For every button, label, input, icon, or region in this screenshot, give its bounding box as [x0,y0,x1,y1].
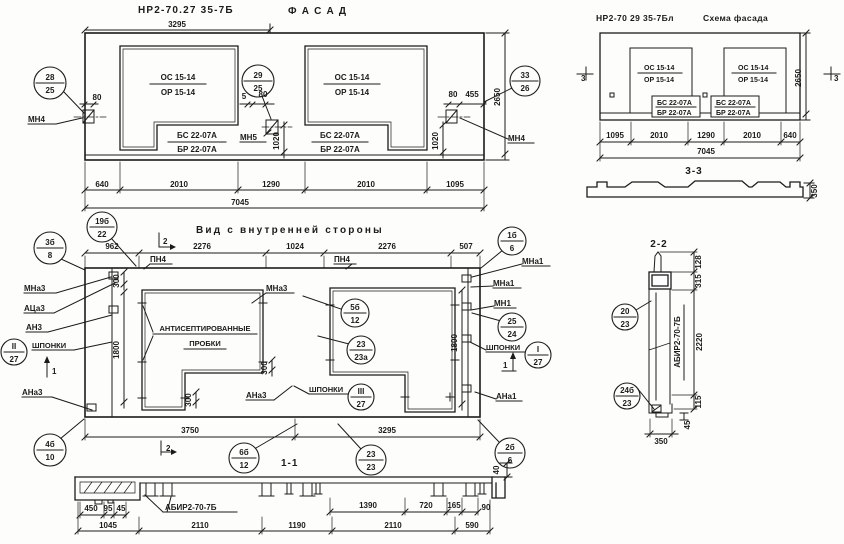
win1-or-label: ОР 15-14 [161,88,196,97]
dim-1020-right: 1020 [431,132,440,150]
callout-23c: 23 [621,320,630,329]
callout-10: 10 [46,453,55,462]
dim-7045: 7045 [231,198,249,207]
dim-2276a: 2276 [193,242,211,251]
dim-315: 315 [694,274,703,288]
dim-1020-lines [281,122,446,158]
callout-6a: 6 [510,244,515,253]
callout-1b: 1б [507,231,516,240]
shponki-right: ШПОНКИ [486,343,520,352]
callout-6bt: 6б [239,448,248,457]
dim-3295b: 3295 [378,426,396,435]
scheme-dim-1095: 1095 [606,131,624,140]
cut-1-left: 1 [52,367,57,376]
scheme-win2-or: ОР 15-14 [738,77,768,84]
scheme-win1-or: ОР 15-14 [644,77,674,84]
callout-24b: 24б [620,386,634,395]
callout-19b: 19б [95,217,109,226]
aca3-label: АЦа3 [24,304,45,313]
dim-45b: 45 [683,420,692,429]
dim-1800-right: 1800 [450,334,459,352]
cut-2-bottom: 2 [166,444,171,453]
panel-drawing: НР2-70.27 35-7Б Ф А С А Д 3295 ОС 15-14 … [0,0,844,544]
s22-break-line [649,343,670,350]
mna1-b: МНа1 [493,279,515,288]
dim-2010b: 2010 [357,180,375,189]
scheme-win2-os: ОС 15-14 [738,65,768,72]
plugs-label-2: ПРОБКИ [189,339,221,348]
ana3-mid: АНа3 [246,391,267,400]
plugs-label-1: АНТИСЕПТИРОВАННЫЕ [160,324,251,333]
dim-450: 450 [84,504,98,513]
dim-1020-mid: 1020 [272,132,281,150]
inner-top-extensions [85,256,480,268]
callout-I: I [537,345,539,354]
scheme-dim-640: 640 [783,131,797,140]
scheme-dim-2650: 2650 [794,69,803,87]
scheme-box1-br: БР 22-07А [657,110,692,117]
s22-lifting-tongue [654,252,661,272]
scheme-box1-bs: БС 22-07А [657,100,692,107]
mn5-label: МН5 [240,133,257,142]
dim-455: 455 [465,90,479,99]
dim-80-left: 80 [93,93,102,102]
callout-23y: 23 [367,463,376,472]
callout-24: 24 [508,330,517,339]
callout-12b: 12 [240,461,249,470]
dim-590: 590 [465,521,479,530]
s22-foot [649,404,672,417]
inner-view: Вид с внутренней стороны 962 [1,212,551,468]
ana1-label: АНа1 [496,392,517,401]
dim-40: 40 [492,465,501,474]
callout-28: 28 [46,73,55,82]
win2-os-label: ОС 15-14 [335,73,370,82]
dim-45a: 45 [117,504,126,513]
dim-300-a: 300 [112,274,121,288]
scheme-dim-2010a: 2010 [650,131,668,140]
s22-dim-45-line [680,413,688,420]
dim-2650: 2650 [493,88,502,106]
dim-115: 115 [694,395,703,408]
callout-bars [36,81,538,83]
mna3-left: МНа3 [24,284,46,293]
mna1-a: МНа1 [522,257,544,266]
dim-1045: 1045 [99,521,117,530]
dim-640: 640 [95,180,109,189]
scheme-title: НР2-70 29 35-7Бл [596,13,674,23]
callout-27b: 27 [357,400,366,409]
scheme-box2-br: БР 22-07А [716,110,751,117]
facade-scheme-view: НР2-70 29 35-7Бл Схема фасада ОС 15-14 О… [577,13,840,201]
mna3-mid: МНа3 [266,284,288,293]
callout-25t: 25 [508,317,517,326]
callout-27a: 27 [10,355,19,364]
inner-window-1-frame [145,293,260,407]
section-3-left: 3 [581,74,586,83]
dim-300-c: 300 [184,393,193,407]
dim-3295-label: 3295 [168,20,186,29]
dim-350b: 350 [654,437,668,446]
pn4-right: ПН4 [334,255,351,264]
dim-1390: 1390 [359,501,377,510]
dim-1800-left: 1800 [112,341,121,359]
win2-bs-label: БС 22-07А [320,131,360,140]
plug-cross-marks [138,299,459,402]
callout-12a: 12 [351,316,360,325]
inner-window-1 [142,290,263,410]
anchor-centerlines [74,117,470,127]
dim-962: 962 [105,242,119,251]
dim-1024: 1024 [286,242,304,251]
facade-subtitle: Ф А С А Д [288,6,347,17]
cut-1-right: 1 [503,361,508,370]
scheme-dim-7045: 7045 [697,147,715,156]
panel-mark-2-2: АБИР2-70-7Б [673,316,682,368]
dim-5: 5 [242,92,247,101]
dim-165: 165 [447,501,461,510]
cut-2-top: 2 [163,237,168,246]
facade-view: НР2-70.27 35-7Б Ф А С А Д 3295 ОС 15-14 … [28,5,540,211]
dim-1290: 1290 [262,180,280,189]
win1-os-label: ОС 15-14 [161,73,196,82]
win1-br-label: БР 22-07А [177,145,217,154]
callout-6b: 6 [508,456,513,465]
callout-23d: 23 [623,399,632,408]
dim-1800-lines [121,287,465,410]
section-2-2: 2-2 АБИР2-70-7Б 20 23 24б 23 128 315 222… [612,239,704,446]
scheme-dim-1290: 1290 [697,131,715,140]
inner-title: Вид с внутренней стороны [196,225,384,236]
callout-29: 29 [254,71,263,80]
ana3-left: АНа3 [22,388,43,397]
dim-2110b: 2110 [384,521,402,530]
callout-5b: 5б [350,303,359,312]
dim-chain-1 [82,187,487,193]
dim-2220: 2220 [695,333,704,351]
dim-300-b: 300 [260,361,269,375]
dim-1190: 1190 [288,521,306,530]
dim-80-right: 80 [449,90,458,99]
section-2-2-label: 2-2 [650,239,667,250]
dim-2110a: 2110 [191,521,209,530]
callout-23t: 23 [357,340,366,349]
callout-2b: 2б [505,443,514,452]
s11-chain-bottom [75,528,493,534]
an3-label: АН3 [26,323,43,332]
facade-title: НР2-70.27 35-7Б [138,5,234,16]
callout-25a: 25 [46,86,55,95]
scheme-box2-bs: БС 22-07А [716,100,751,107]
mn4-right-label: МН4 [508,134,525,143]
section-3-3-profile [587,181,803,197]
dim-extensions [85,162,484,211]
callout-22: 22 [98,230,107,239]
s11-ribs [143,483,486,496]
s11-hatch-insert [80,482,135,493]
win1-bs-label: БС 22-07А [177,131,217,140]
mn1-label: МН1 [494,299,511,308]
dim-350: 350 [810,184,819,198]
s22-dim-chain [691,249,697,412]
inner-bottom-chain [82,434,483,440]
dim-90: 90 [482,503,491,512]
dim-1095: 1095 [446,180,464,189]
dim-128: 128 [694,255,703,269]
dim-507: 507 [459,242,473,251]
callout-II: II [12,342,16,351]
dim-2276b: 2276 [378,242,396,251]
panel-mark-1-1: АБИР2-70-7Б [165,503,217,512]
callout-8: 8 [48,251,53,260]
section-1-1: 1-1 АБИР2-70-7Б 6б 12 23 23 450 95 45 13… [75,424,512,534]
s11-dim-40-line [500,460,512,480]
callout-4b: 4б [45,440,54,449]
pn4-left: ПН4 [150,255,167,264]
dim-3750: 3750 [181,426,199,435]
drawing-sheet: НР2-70.27 35-7Б Ф А С А Д 3295 ОС 15-14 … [0,0,844,544]
shponki-left: ШПОНКИ [32,341,66,350]
scheme-subtitle: Схема фасада [703,13,768,23]
callout-20: 20 [621,307,630,316]
callout-33: 33 [521,71,530,80]
s11-right-block [492,477,505,498]
callout-3b: 3б [45,238,54,247]
win2-or-label: ОР 15-14 [335,88,370,97]
callout-III: III [358,387,365,396]
callout-26: 26 [521,84,530,93]
dim-chain-total [82,205,487,211]
dim-720: 720 [419,501,433,510]
dim-80-mid: 80 [259,90,268,99]
section-1-1-label: 1-1 [281,458,298,469]
shponki-mid: ШПОНКИ [309,385,343,394]
dim-95: 95 [104,504,113,513]
section-3-right: 3 [834,74,839,83]
inner-top-chain [82,250,483,256]
callout-27c: 27 [534,358,543,367]
dim-small-ticks [80,102,486,107]
mn4-left-label: МН4 [28,115,45,124]
s22-top-anchor [652,275,668,286]
callout-23x: 23 [367,450,376,459]
scheme-dim-2010b: 2010 [743,131,761,140]
dim-2010a: 2010 [170,180,188,189]
scheme-win1-os: ОС 15-14 [644,65,674,72]
win2-br-label: БР 22-07А [320,145,360,154]
callout-23a: 23а [354,353,368,362]
section-3-3-label: 3-3 [685,166,702,177]
